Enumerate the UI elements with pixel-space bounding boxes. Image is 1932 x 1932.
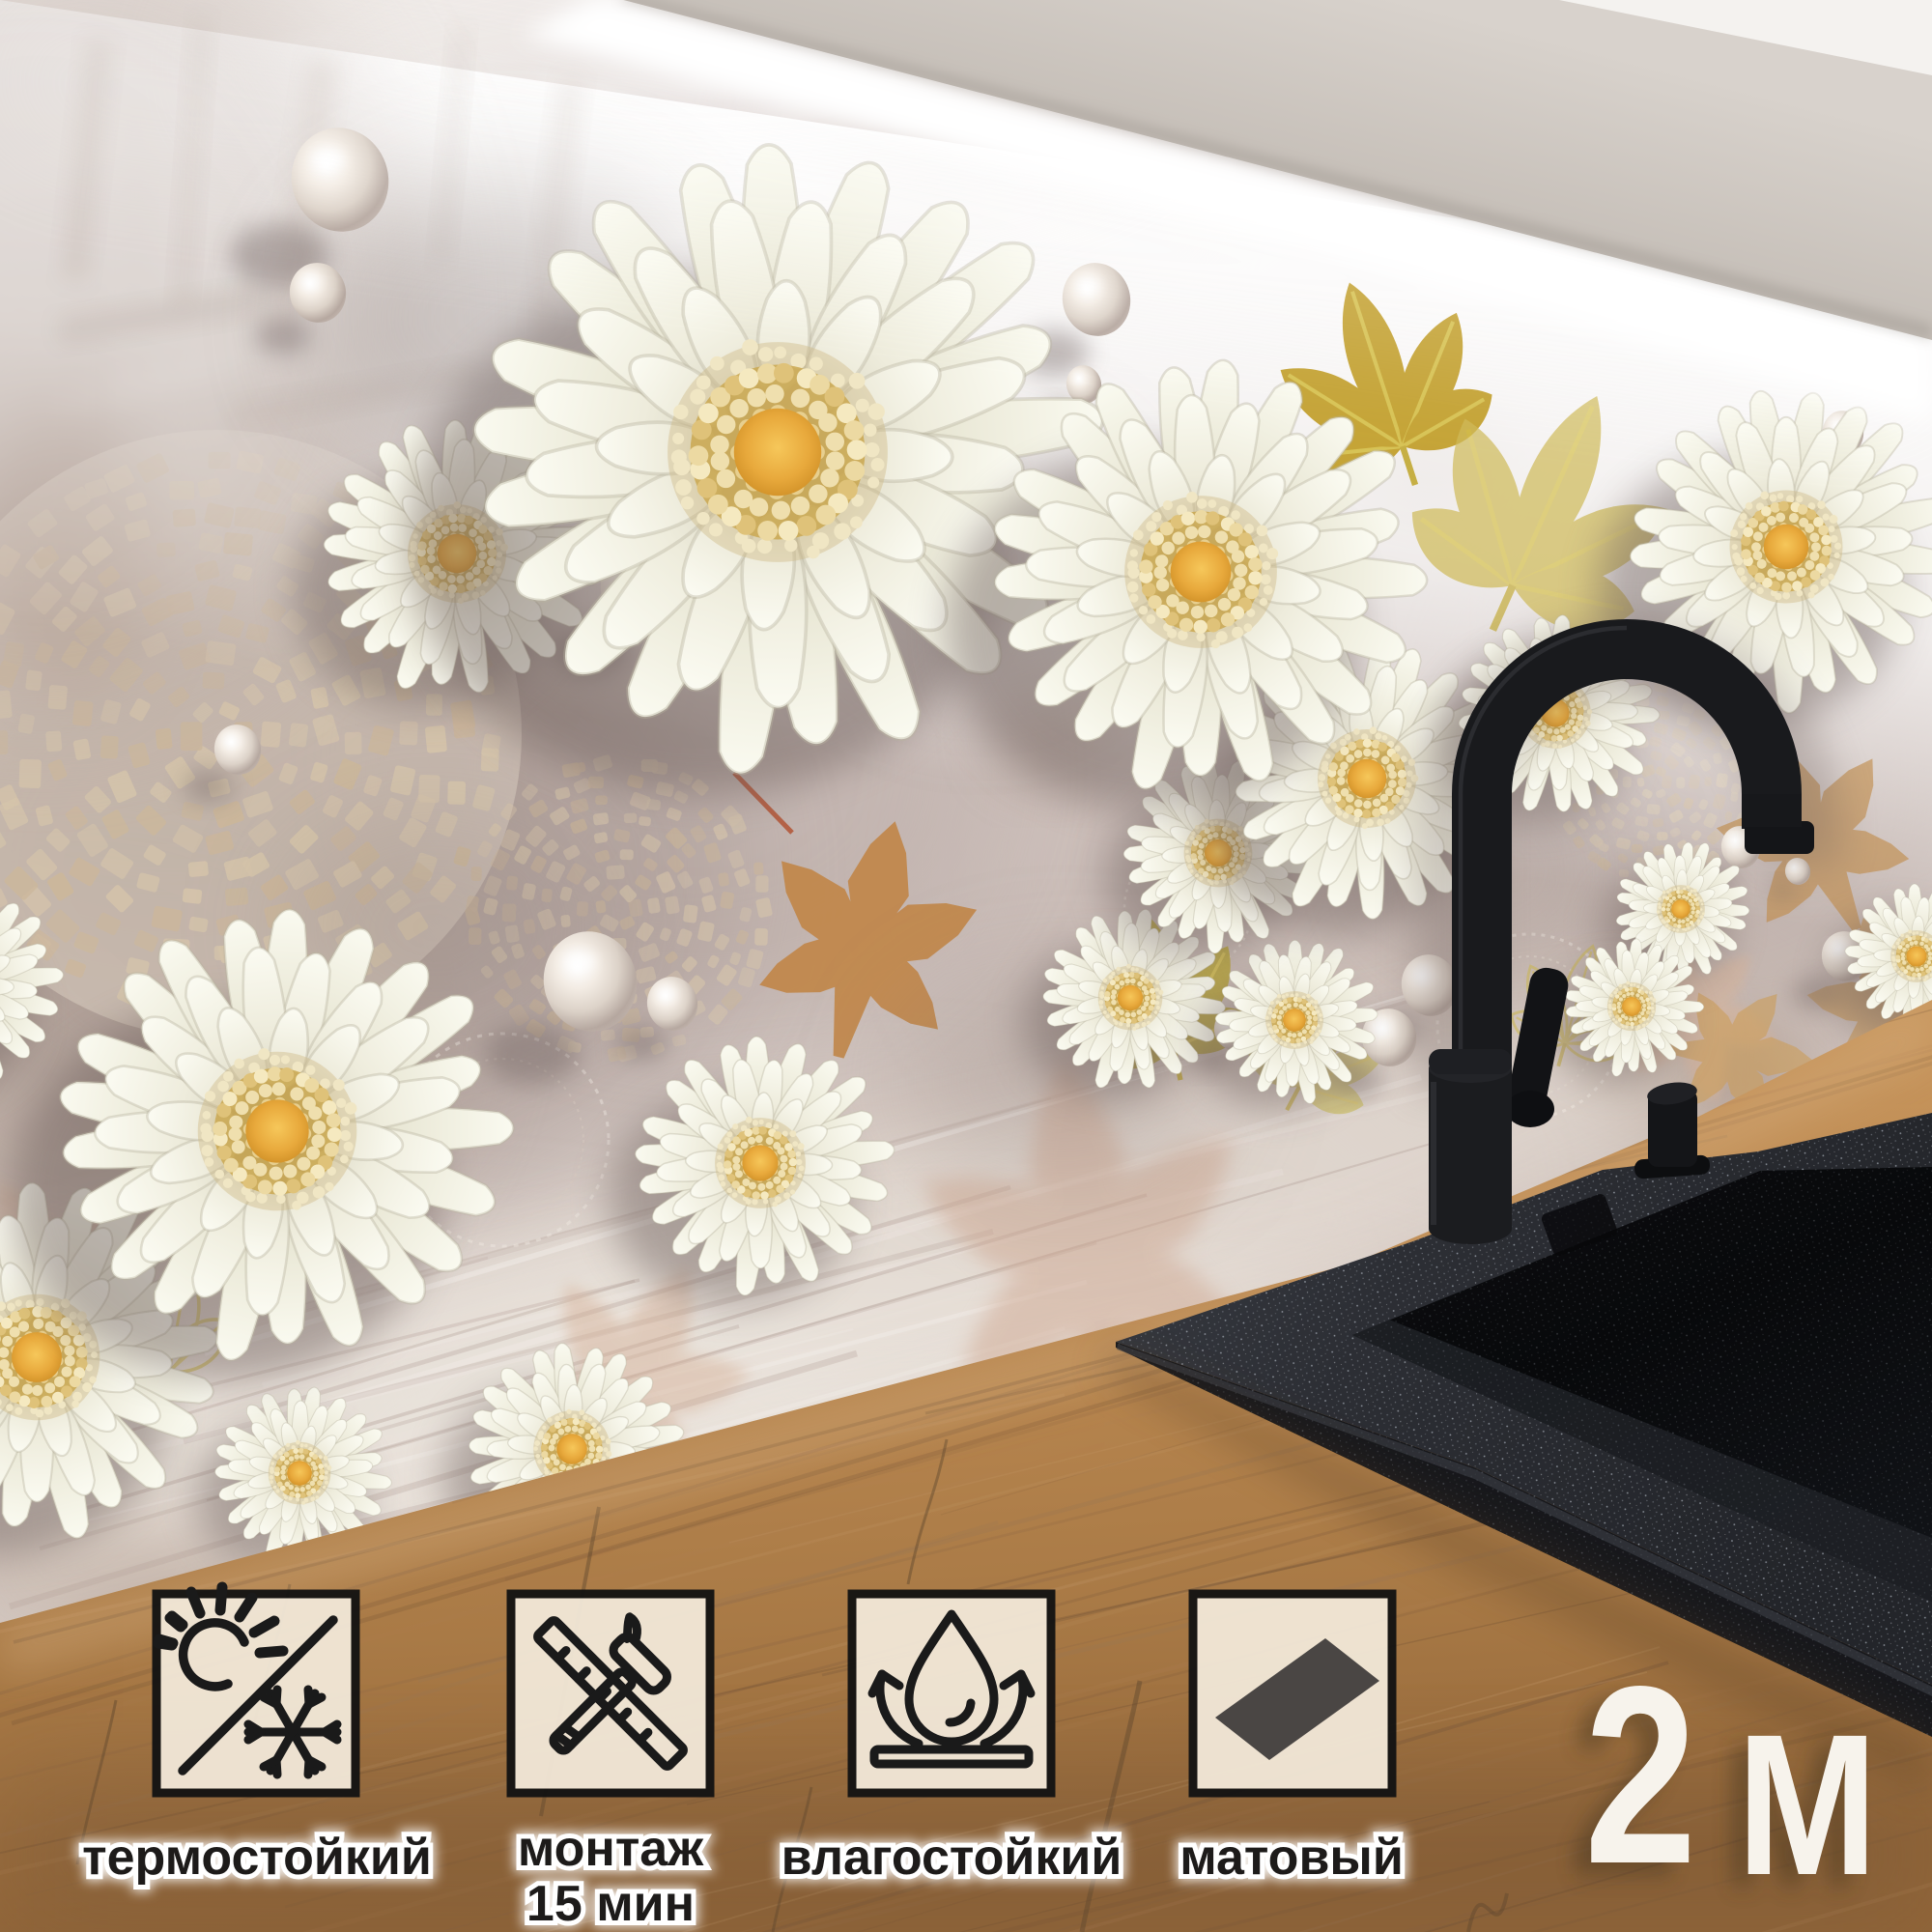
svg-text:2: 2 bbox=[1584, 1634, 1697, 1918]
svg-text:15 мин: 15 мин bbox=[526, 1876, 695, 1932]
svg-text:матовый: матовый bbox=[1179, 1830, 1404, 1886]
svg-text:монтаж: монтаж bbox=[518, 1821, 704, 1877]
svg-text:М: М bbox=[1737, 1692, 1878, 1918]
svg-text:термостойкий: термостойкий bbox=[82, 1830, 432, 1886]
svg-text:влагостойкий: влагостойкий bbox=[781, 1830, 1122, 1886]
